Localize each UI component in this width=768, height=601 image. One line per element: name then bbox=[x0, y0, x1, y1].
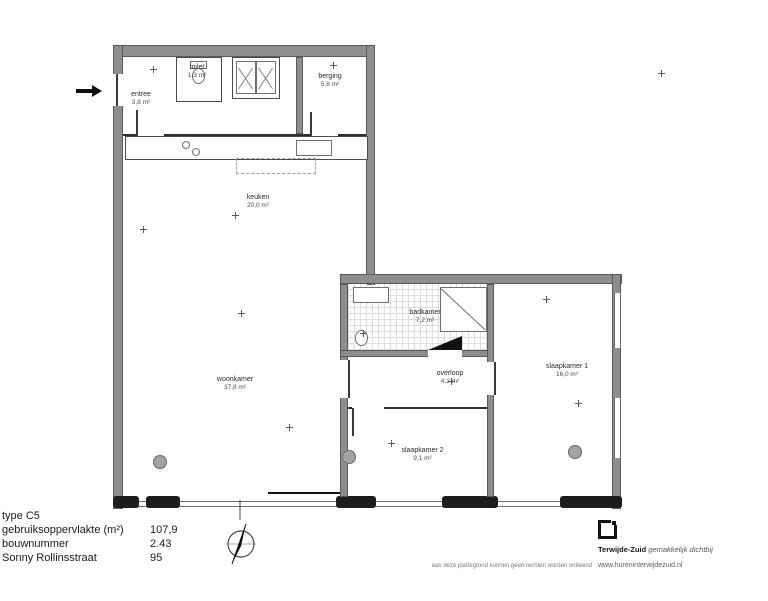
room-area: 9,1 m² bbox=[385, 455, 460, 463]
room-label-toilet: toilet 1,3 m² bbox=[175, 63, 219, 81]
facade-pier bbox=[146, 496, 180, 508]
dimension-tick bbox=[543, 296, 550, 303]
brand-tagline: gemakkelijk dichtbij bbox=[648, 545, 713, 554]
brand-url: www.hureninterwijdezuid.nl bbox=[598, 562, 763, 569]
facade-pier bbox=[560, 496, 622, 508]
room-name: entree bbox=[117, 90, 165, 99]
row-value: 2.43 bbox=[150, 538, 171, 550]
plan-type: type C5 bbox=[2, 510, 40, 522]
slaapkamer2-door-leaf bbox=[352, 408, 354, 436]
room-label-woonkamer: woonkamer 37,8 m² bbox=[200, 375, 270, 393]
wall-top bbox=[113, 45, 375, 57]
room-name: badkamer bbox=[390, 308, 460, 317]
room-label-overloop: overloop 4,2 m² bbox=[415, 369, 485, 387]
room-name: berging bbox=[300, 72, 360, 81]
title-row-type: type C5 bbox=[2, 510, 222, 524]
room-area: 37,8 m² bbox=[200, 384, 270, 392]
title-row-street: Sonny Rollinsstraat 95 bbox=[2, 552, 222, 566]
brand-block: Terwijde-Zuid gemakkelijk dichtbij www.h… bbox=[598, 520, 763, 569]
logo-dot bbox=[612, 521, 616, 525]
room-label-keuken: keuken 20,0 m² bbox=[226, 193, 290, 211]
room-label-berging: berging 5,8 m² bbox=[300, 72, 360, 90]
slaapkamer1-door-leaf bbox=[494, 362, 496, 395]
room-area: 7,2 m² bbox=[390, 317, 460, 325]
facade-pier bbox=[442, 496, 498, 508]
hob-burner-icon bbox=[182, 141, 190, 149]
dimension-tick bbox=[140, 226, 147, 233]
room-label-slaapkamer2: slaapkamer 2 9,1 m² bbox=[385, 446, 460, 464]
room-area: 1,3 m² bbox=[175, 72, 219, 80]
wall-berging-left bbox=[296, 57, 303, 134]
balcony-rail bbox=[268, 492, 348, 494]
dimension-tick bbox=[360, 330, 367, 337]
window-right-lower bbox=[614, 398, 621, 458]
wall-badkamer-bottom bbox=[340, 350, 490, 357]
dimension-tick bbox=[658, 70, 665, 77]
column-icon bbox=[568, 445, 582, 459]
dimension-tick bbox=[150, 66, 157, 73]
floorplan-sheet: entree 3,8 m² toilet 1,3 m² berging 5,8 … bbox=[0, 0, 768, 601]
room-area: 20,0 m² bbox=[226, 202, 290, 210]
entrance-arrow-icon bbox=[76, 85, 104, 97]
row-label: bouwnummer bbox=[2, 538, 69, 550]
dimension-tick bbox=[286, 424, 293, 431]
dimension-tick bbox=[575, 400, 582, 407]
north-arrow-icon bbox=[218, 500, 264, 572]
room-name: woonkamer bbox=[200, 375, 270, 384]
room-area: 3,8 m² bbox=[117, 99, 165, 107]
facade-pier bbox=[113, 496, 139, 508]
facade-pier bbox=[336, 496, 376, 508]
dryer-icon bbox=[256, 61, 276, 94]
room-name: overloop bbox=[415, 369, 485, 378]
row-value: 107,9 bbox=[150, 524, 178, 536]
badkamer-door-opening bbox=[428, 349, 462, 358]
overloop-door-leaf bbox=[348, 360, 350, 398]
title-row-area: gebruiksoppervlakte (m²) 107,9 bbox=[2, 524, 222, 538]
wall-left bbox=[113, 45, 123, 509]
room-label-slaapkamer1: slaapkamer 1 16,0 m² bbox=[528, 362, 606, 380]
room-name: toilet bbox=[175, 63, 219, 72]
room-label-entree: entree 3,8 m² bbox=[117, 90, 165, 108]
arrow-head bbox=[92, 85, 102, 97]
kitchen-sink-icon bbox=[296, 140, 332, 156]
dimension-tick bbox=[330, 62, 337, 69]
room-area: 5,8 m² bbox=[300, 81, 360, 89]
berging-door-leaf bbox=[310, 112, 312, 136]
kitchen-island-dashed bbox=[236, 158, 316, 174]
wall-wing-top bbox=[340, 274, 622, 284]
room-area: 16,0 m² bbox=[528, 371, 606, 379]
column-icon bbox=[342, 450, 356, 464]
row-label: Sonny Rollinsstraat bbox=[2, 552, 97, 564]
brand-logo-icon bbox=[598, 520, 617, 539]
window-right-upper bbox=[614, 293, 621, 348]
washbasin-icon bbox=[353, 287, 389, 303]
column-icon bbox=[153, 455, 167, 469]
room-name: slaapkamer 1 bbox=[528, 362, 606, 371]
dimension-tick bbox=[232, 212, 239, 219]
room-name: slaapkamer 2 bbox=[385, 446, 460, 455]
room-name: keuken bbox=[226, 193, 290, 202]
washer-icon bbox=[236, 61, 256, 94]
wall-right-upper bbox=[366, 45, 375, 285]
brand-name: Terwijde-Zuid bbox=[598, 545, 646, 554]
row-label: gebruiksoppervlakte (m²) bbox=[2, 524, 124, 536]
room-area: 4,2 m² bbox=[415, 378, 485, 386]
hob-burner-icon bbox=[192, 148, 200, 156]
room-label-badkamer: badkamer 7,2 m² bbox=[390, 308, 460, 326]
dimension-tick bbox=[238, 310, 245, 317]
row-value: 95 bbox=[150, 552, 162, 564]
arrow-shaft bbox=[76, 89, 92, 93]
entree-door-leaf bbox=[136, 110, 138, 136]
wall-overloop-bottom-b bbox=[384, 407, 487, 409]
title-row-bouwnummer: bouwnummer 2.43 bbox=[2, 538, 222, 552]
disclaimer-text: aan deze plattegrond kunnen geen rechten… bbox=[428, 563, 592, 569]
